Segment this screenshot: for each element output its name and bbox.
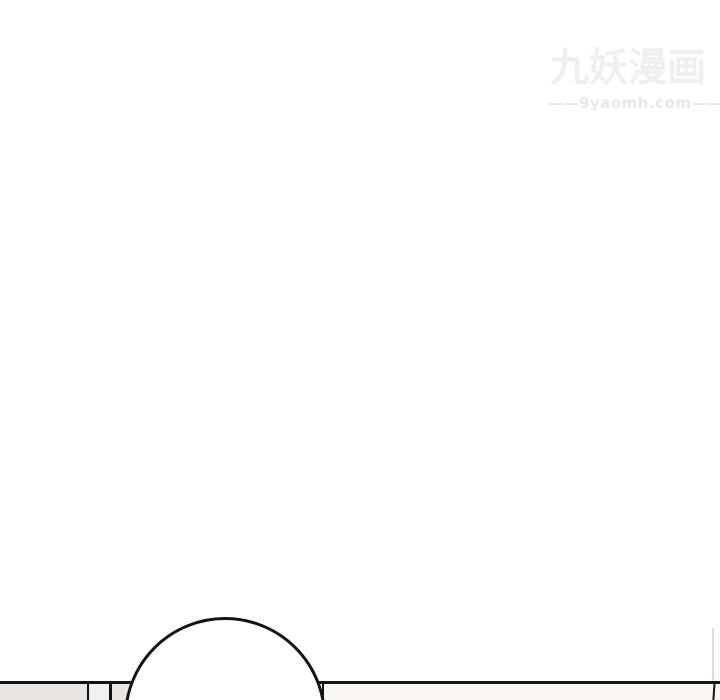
panel-right-floor-shading: [322, 684, 720, 700]
character-head-outline: [124, 617, 326, 700]
panel-left-wall-gap: [90, 684, 109, 700]
watermark-site-url: ——9yaomh.com——: [548, 94, 708, 112]
panel-left-frame-line-1: [87, 682, 89, 700]
site-watermark: 九妖漫画 ——9yaomh.com——: [548, 49, 708, 112]
panel-right-faint-sketch-line: [712, 628, 714, 681]
watermark-site-name: 九妖漫画: [548, 49, 708, 88]
panel-top-border-line: [0, 681, 720, 684]
panel-left-wall-shading: [0, 684, 133, 700]
panel-left-frame-line-2: [109, 682, 112, 700]
comic-page: 九妖漫画 ——9yaomh.com——: [0, 0, 720, 700]
